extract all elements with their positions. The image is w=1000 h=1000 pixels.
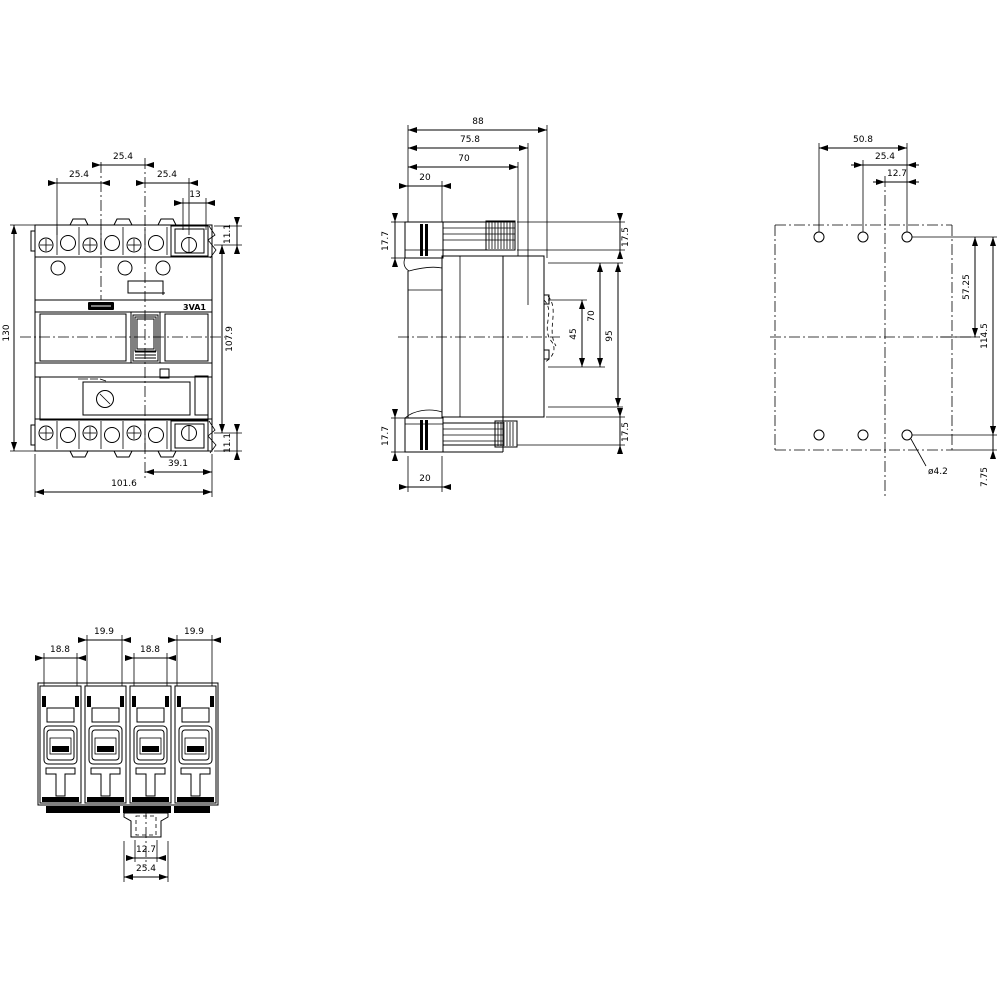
dim-rear-57-25: 57.25 <box>962 274 972 300</box>
dim-bottom-tab-12-7: 12.7 <box>136 845 156 855</box>
dim-rear-25-4: 25.4 <box>875 152 895 162</box>
dim-bottom-pole3: 18.8 <box>140 645 160 655</box>
dim-front-pitch-left: 25.4 <box>69 170 89 180</box>
dim-front-width: 101.6 <box>111 479 137 489</box>
toggle-handle <box>133 315 158 361</box>
dim-bottom-pole1: 18.8 <box>50 645 70 655</box>
dim-side-bottom-17-7: 17.7 <box>381 426 391 446</box>
dim-rear-hole-diameter: ø4.2 <box>928 467 948 477</box>
dim-rear-114-5: 114.5 <box>980 323 990 349</box>
pole-modules <box>40 686 216 803</box>
dim-front-screw-span: 107.9 <box>225 326 235 352</box>
dim-front-bottom-offset: 11.1 <box>223 433 233 453</box>
bottom-busbar <box>443 423 503 445</box>
dim-front-lower-span: 39.1 <box>168 459 188 469</box>
product-type-label: 3VA1 <box>183 303 206 312</box>
dim-side-top-17-7: 17.7 <box>381 231 391 251</box>
dim-side-top-17-5: 17.5 <box>621 227 631 247</box>
hole-leader-line <box>911 439 926 466</box>
dim-rear-7-75: 7.75 <box>980 467 990 487</box>
busbar-hatch-bottom <box>498 422 513 446</box>
dim-side-rear-95: 95 <box>605 330 615 341</box>
breaker-front-outline <box>35 225 212 451</box>
dim-side-depth-70: 70 <box>458 154 470 164</box>
dim-side-depth-75-8: 75.8 <box>460 135 480 145</box>
dim-front-terminal-width: 13 <box>189 190 200 200</box>
base-band <box>46 806 210 813</box>
rear-view-dimensions: 50.8 25.4 12.7 57.25 114.5 7.75 ø4.2 <box>819 135 997 487</box>
dim-bottom-tab-25-4: 25.4 <box>136 864 156 874</box>
dim-front-height: 130 <box>2 324 12 341</box>
dim-side-front-20-top: 20 <box>419 173 431 183</box>
technical-drawing: 3VA1 <box>0 0 1000 1000</box>
dim-side-rear-70: 70 <box>587 310 597 322</box>
dim-front-pitch-top: 25.4 <box>113 152 133 162</box>
dim-side-rear-45: 45 <box>569 328 579 339</box>
rear-view <box>770 176 980 497</box>
breaker-side-outline <box>442 256 544 417</box>
escutcheon <box>128 281 163 293</box>
bottom-view-dimensions: 19.9 19.9 18.8 18.8 12.7 25.4 <box>35 627 221 882</box>
dim-side-depth-total: 88 <box>472 117 484 127</box>
busbar-hatch <box>489 222 513 249</box>
dim-rear-12-7: 12.7 <box>887 169 907 179</box>
mounting-holes <box>814 232 912 440</box>
n-pole-terminal <box>171 226 216 258</box>
dim-side-bottom-17-5: 17.5 <box>621 422 631 442</box>
dimension-drawing-page: 3VA1 <box>0 0 1000 1000</box>
front-view: 3VA1 <box>20 158 225 478</box>
bottom-terminal-screws <box>39 421 216 453</box>
tiny-setting-label <box>78 379 106 381</box>
dim-rear-50-8: 50.8 <box>853 135 873 145</box>
dim-side-front-20-bottom: 20 <box>419 474 431 484</box>
dim-front-pitch-right: 25.4 <box>157 170 177 180</box>
dim-bottom-pole2: 19.9 <box>94 627 114 637</box>
dim-bottom-pole4: 19.9 <box>184 627 204 637</box>
side-view <box>398 221 560 452</box>
front-view-dimensions: 25.4 25.4 25.4 13 11.1 107.9 11.1 130 <box>2 152 242 497</box>
bottom-view <box>38 683 218 866</box>
side-view-dimensions: 88 75.8 70 20 17.7 17.5 45 70 95 <box>381 117 631 492</box>
dim-front-top-offset: 11.1 <box>223 224 233 244</box>
